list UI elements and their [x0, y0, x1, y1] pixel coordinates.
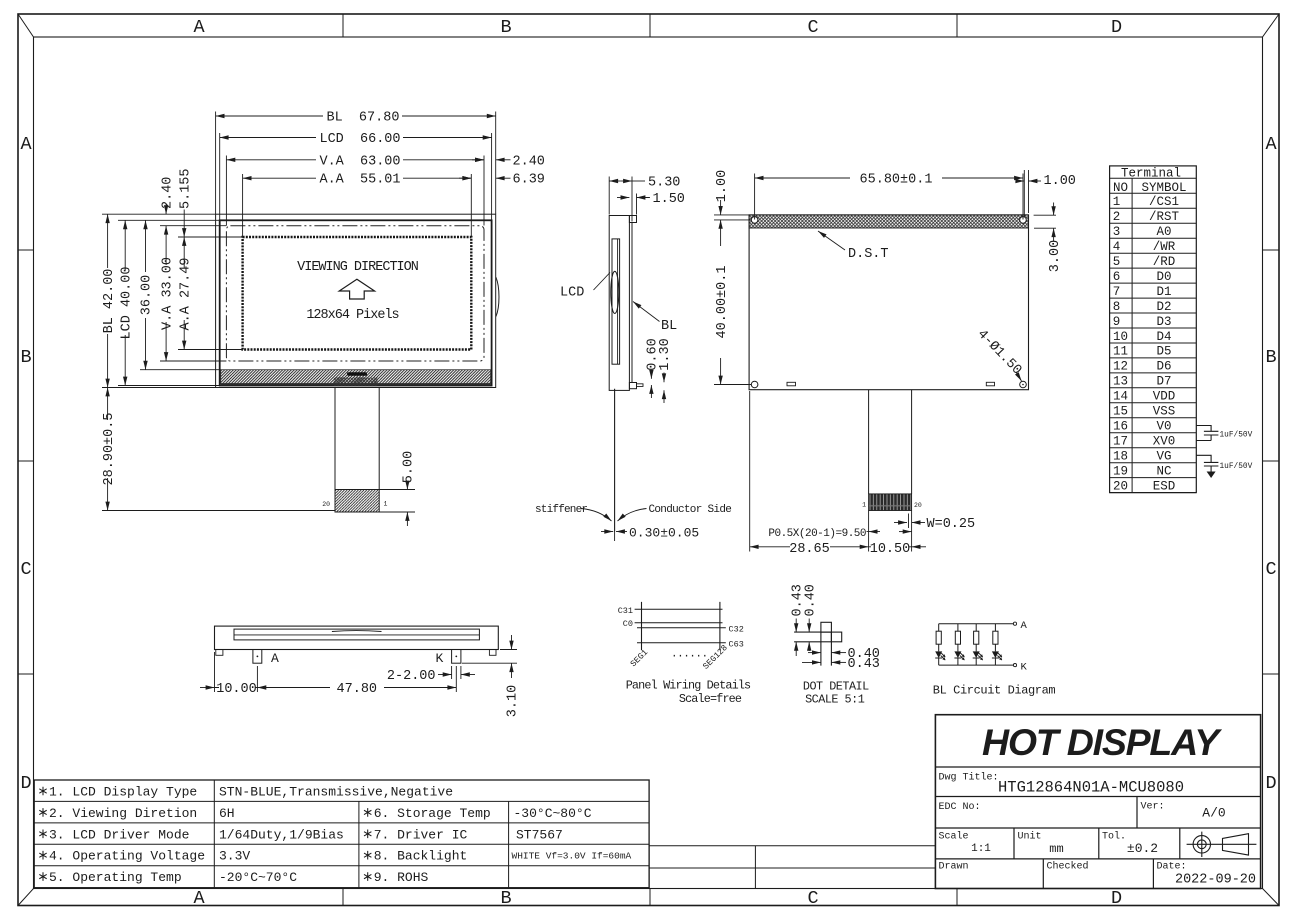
svg-text:20: 20 — [322, 501, 330, 508]
svg-text:Drawn: Drawn — [939, 862, 969, 873]
svg-text:2.40: 2.40 — [160, 177, 175, 209]
svg-text:LCD: LCD — [560, 286, 584, 301]
svg-text:D1: D1 — [1156, 285, 1171, 299]
svg-text:B: B — [20, 347, 31, 368]
svg-text:0.40: 0.40 — [803, 584, 818, 616]
svg-text:65.80±0.1: 65.80±0.1 — [860, 173, 933, 188]
svg-text:7. Driver IC: 7. Driver IC — [374, 827, 468, 842]
svg-text:Dwg Title:: Dwg Title: — [939, 772, 999, 784]
svg-text:stiffener: stiffener — [535, 504, 587, 516]
svg-text:1.00: 1.00 — [1044, 174, 1076, 189]
svg-text:Scale=free: Scale=free — [679, 692, 742, 706]
svg-text:D2: D2 — [1156, 300, 1171, 314]
svg-text:/CS1: /CS1 — [1149, 195, 1179, 209]
svg-text:A0: A0 — [1156, 225, 1171, 239]
svg-text:D5: D5 — [1156, 345, 1171, 359]
svg-text:/WR: /WR — [1153, 240, 1176, 254]
svg-text:HOT DISPLAY: HOT DISPLAY — [982, 721, 1222, 763]
svg-text:D: D — [1265, 773, 1276, 794]
svg-text:3.10: 3.10 — [506, 685, 521, 717]
svg-text:2022-09-20: 2022-09-20 — [1175, 873, 1256, 888]
svg-text:40.00±0.1: 40.00±0.1 — [715, 266, 730, 339]
svg-text:Panel Wiring Details: Panel Wiring Details — [626, 679, 751, 693]
svg-text:C0: C0 — [623, 619, 633, 629]
svg-text:19: 19 — [1113, 465, 1128, 479]
svg-text:1: 1 — [1113, 195, 1121, 209]
svg-text:STN-BLUE,Transmissive,Negative: STN-BLUE,Transmissive,Negative — [219, 785, 453, 800]
svg-text:1.00: 1.00 — [715, 170, 730, 202]
svg-text:128x64 Pixels: 128x64 Pixels — [306, 308, 398, 323]
svg-text:BL 67.80: BL 67.80 — [327, 111, 400, 126]
svg-text:5.30: 5.30 — [648, 176, 680, 191]
svg-text:18: 18 — [1113, 450, 1128, 464]
svg-text:1uF/50V: 1uF/50V — [1220, 432, 1253, 440]
svg-text:NC: NC — [1156, 465, 1171, 479]
svg-text:A: A — [1021, 620, 1028, 632]
svg-text:B: B — [1265, 347, 1276, 368]
svg-text:47.80: 47.80 — [337, 682, 378, 697]
svg-text:36.00: 36.00 — [140, 275, 155, 316]
svg-text:9. ROHS: 9. ROHS — [374, 870, 429, 885]
svg-text:SCALE 5:1: SCALE 5:1 — [805, 693, 865, 707]
svg-text:±0.2: ±0.2 — [1127, 841, 1158, 856]
svg-text:B: B — [500, 888, 511, 909]
svg-text:6: 6 — [1113, 270, 1121, 284]
svg-text:D3: D3 — [1156, 315, 1171, 329]
svg-text:DOT DETAIL: DOT DETAIL — [803, 679, 869, 693]
svg-text:6. Storage Temp: 6. Storage Temp — [374, 806, 491, 821]
svg-text:BL 42.00: BL 42.00 — [102, 269, 117, 334]
svg-text:VG: VG — [1156, 450, 1171, 464]
svg-text:16: 16 — [1113, 420, 1128, 434]
svg-text:1. LCD Display Type: 1. LCD Display Type — [49, 785, 197, 800]
svg-text:5.155: 5.155 — [178, 168, 193, 209]
svg-text:A/0: A/0 — [1202, 806, 1225, 821]
svg-text:WHITE Vf=3.0V If=60mA: WHITE Vf=3.0V If=60mA — [512, 851, 632, 862]
svg-text:mm: mm — [1049, 842, 1063, 856]
svg-text:5.00: 5.00 — [402, 451, 417, 483]
svg-text:BL Circuit Diagram: BL Circuit Diagram — [933, 683, 1056, 697]
svg-text:ESD: ESD — [1153, 479, 1176, 493]
svg-text:3.00: 3.00 — [1048, 240, 1063, 272]
svg-text:Unit: Unit — [1018, 831, 1042, 843]
svg-text:9: 9 — [1113, 315, 1121, 329]
svg-text:15: 15 — [1113, 405, 1128, 419]
svg-text:1: 1 — [862, 502, 866, 509]
svg-text:SYMBOL: SYMBOL — [1141, 181, 1186, 195]
svg-text:A: A — [271, 651, 279, 666]
svg-text:12: 12 — [1113, 360, 1128, 374]
svg-text:C32: C32 — [729, 625, 744, 635]
svg-text:K: K — [436, 651, 444, 666]
svg-text:Tol.: Tol. — [1102, 831, 1126, 843]
svg-text:3.3V: 3.3V — [219, 849, 250, 864]
svg-text:Terminal: Terminal — [1121, 166, 1181, 180]
svg-text:VSS: VSS — [1153, 405, 1176, 419]
svg-text:D: D — [1111, 888, 1122, 909]
svg-text:BL: BL — [661, 319, 677, 334]
svg-text:LCD 40.00: LCD 40.00 — [119, 267, 134, 340]
svg-text:11: 11 — [1113, 345, 1128, 359]
svg-text:B: B — [500, 17, 511, 38]
svg-text:1/64Duty,1/9Bias: 1/64Duty,1/9Bias — [219, 827, 344, 842]
svg-text:-20°C~70°C: -20°C~70°C — [219, 870, 297, 885]
svg-text:EDC No:: EDC No: — [939, 802, 981, 813]
svg-text:0.43: 0.43 — [848, 657, 880, 672]
svg-text:A: A — [193, 888, 205, 909]
svg-text:6.39: 6.39 — [513, 173, 545, 188]
svg-text:6H: 6H — [219, 806, 235, 821]
svg-text:1uF/50V: 1uF/50V — [1220, 463, 1253, 471]
svg-text:D7: D7 — [1156, 375, 1171, 389]
svg-text:4: 4 — [1113, 240, 1121, 254]
svg-text:10: 10 — [1113, 330, 1128, 344]
svg-text:4. Operating Voltage: 4. Operating Voltage — [49, 849, 205, 864]
svg-text:Conductor Side: Conductor Side — [649, 504, 732, 516]
svg-text:LCD 66.00: LCD 66.00 — [319, 132, 400, 147]
svg-text:ST7567: ST7567 — [516, 827, 563, 842]
svg-text:8. Backlight: 8. Backlight — [374, 849, 468, 864]
svg-text:C63: C63 — [729, 640, 744, 650]
svg-text:/RD: /RD — [1153, 255, 1176, 269]
svg-text:A: A — [20, 134, 32, 155]
svg-text:13: 13 — [1113, 375, 1128, 389]
svg-text:A: A — [1265, 134, 1277, 155]
svg-text:XV0: XV0 — [1153, 435, 1176, 449]
svg-text:2-2.00: 2-2.00 — [387, 669, 436, 684]
svg-text:......: ...... — [671, 649, 708, 661]
svg-text:K: K — [1021, 662, 1028, 674]
svg-text:Date:: Date: — [1157, 862, 1187, 873]
svg-text:Ver:: Ver: — [1141, 802, 1165, 813]
svg-text:A.A 27.49: A.A 27.49 — [178, 258, 193, 331]
svg-text:C31: C31 — [618, 606, 633, 616]
svg-text:-30°C~80°C: -30°C~80°C — [514, 806, 592, 821]
svg-text:C: C — [807, 17, 818, 38]
svg-text:17: 17 — [1113, 435, 1128, 449]
svg-text:/RST: /RST — [1149, 210, 1180, 224]
svg-text:10.50: 10.50 — [870, 542, 911, 557]
svg-text:2.40: 2.40 — [513, 154, 545, 169]
svg-text:5: 5 — [1113, 255, 1121, 269]
svg-text:V0: V0 — [1156, 420, 1171, 434]
svg-text:28.65: 28.65 — [789, 542, 830, 557]
svg-text:C: C — [20, 559, 31, 580]
svg-text:3. LCD Driver Mode: 3. LCD Driver Mode — [49, 827, 189, 842]
svg-text:D: D — [1111, 17, 1122, 38]
svg-text:20: 20 — [1113, 479, 1128, 493]
svg-text:2. Viewing Diretion: 2. Viewing Diretion — [49, 806, 197, 821]
svg-text:20: 20 — [914, 502, 922, 509]
svg-text:V.A 63.00: V.A 63.00 — [319, 154, 400, 169]
svg-text:7: 7 — [1113, 285, 1121, 299]
svg-text:A: A — [193, 17, 205, 38]
svg-text:0.30±0.05: 0.30±0.05 — [629, 525, 699, 540]
svg-text:P0.5X(20-1)=9.50: P0.5X(20-1)=9.50 — [768, 528, 866, 540]
svg-text:Checked: Checked — [1047, 861, 1089, 873]
svg-text:C: C — [807, 888, 818, 909]
svg-text:3: 3 — [1113, 225, 1121, 239]
svg-text:HTG12864N01A-MCU8080: HTG12864N01A-MCU8080 — [998, 779, 1184, 797]
svg-text:5. Operating Temp: 5. Operating Temp — [49, 870, 182, 885]
svg-text:D: D — [20, 773, 31, 794]
svg-text:W=0.25: W=0.25 — [927, 517, 976, 532]
svg-text:2: 2 — [1113, 210, 1121, 224]
svg-text:NO: NO — [1113, 181, 1128, 195]
svg-text:D0: D0 — [1156, 270, 1171, 284]
svg-text:VIEWING DIRECTION: VIEWING DIRECTION — [297, 260, 419, 275]
svg-text:C: C — [1265, 559, 1276, 580]
svg-text:28.90±0.5: 28.90±0.5 — [102, 413, 117, 486]
svg-text:1:1: 1:1 — [971, 843, 991, 855]
svg-text:A.A 55.01: A.A 55.01 — [319, 173, 400, 188]
svg-text:D.S.T: D.S.T — [848, 247, 889, 262]
svg-text:1.30: 1.30 — [658, 338, 673, 370]
svg-text:1: 1 — [384, 501, 388, 508]
svg-text:D4: D4 — [1156, 330, 1171, 344]
svg-text:VDD: VDD — [1153, 390, 1176, 404]
svg-text:14: 14 — [1113, 390, 1128, 404]
svg-text:10.00: 10.00 — [216, 682, 257, 697]
svg-text:D6: D6 — [1156, 360, 1171, 374]
svg-text:1.50: 1.50 — [653, 192, 685, 207]
svg-text:V.A 33.00: V.A 33.00 — [160, 257, 175, 330]
svg-text:Scale: Scale — [939, 831, 969, 843]
svg-text:8: 8 — [1113, 300, 1121, 314]
